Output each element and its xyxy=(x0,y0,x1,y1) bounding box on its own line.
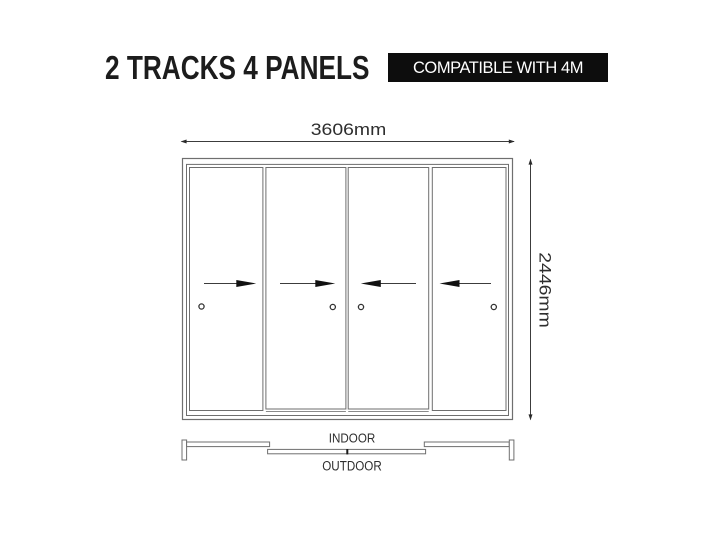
svg-text:OUTDOOR: OUTDOOR xyxy=(322,458,382,473)
svg-text:INDOOR: INDOOR xyxy=(329,431,376,446)
svg-text:2446mm: 2446mm xyxy=(536,252,554,328)
svg-text:3606mm: 3606mm xyxy=(311,121,387,139)
